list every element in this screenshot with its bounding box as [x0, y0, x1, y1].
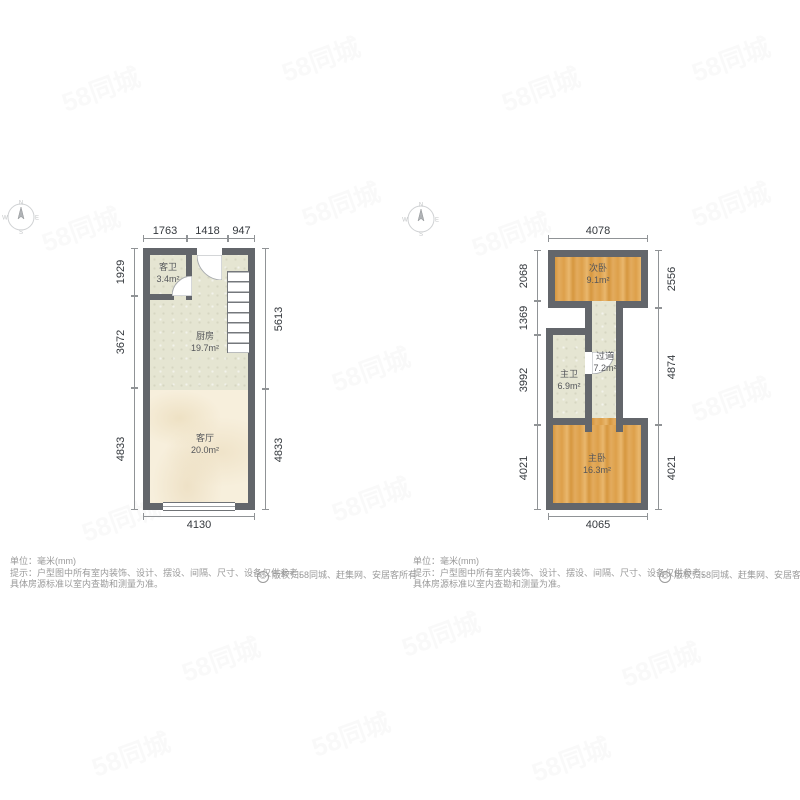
watermark-text: 58同城 [296, 172, 385, 234]
window [163, 502, 235, 511]
wall-segment [585, 418, 592, 432]
watermark-text: 58同城 [396, 602, 485, 664]
room-label-hallway: 过道 7.2m² [588, 350, 622, 374]
watermark-text: 58同城 [326, 337, 415, 399]
room-name: 次卧 [589, 263, 607, 273]
watermark-text: 58同城 [276, 27, 365, 89]
dimension: 4874 [654, 308, 676, 425]
copyright-text: 版权归58同城、赶集网、安居客所有 [272, 570, 417, 580]
room-name: 厨房 [196, 331, 214, 341]
watermark-text: 58同城 [526, 727, 615, 789]
dimension: 5613 [261, 248, 283, 389]
svg-text:E: E [435, 218, 439, 224]
dim-label: 4833 [115, 437, 127, 461]
dim-label: 1763 [143, 225, 187, 237]
floorplan-page: 58同城 58同城 58同城 58同城 58同城 58同城 58同城 58同城 … [0, 0, 800, 800]
room-name: 客厅 [196, 433, 214, 443]
watermark-text: 58同城 [86, 722, 175, 784]
dim-label: 4130 [143, 519, 255, 531]
dim-label: 4078 [548, 225, 648, 237]
dim-label: 4833 [273, 437, 285, 461]
dimension: 4078 [548, 225, 648, 239]
room-name: 主卧 [588, 453, 606, 463]
dimension: 1369 [520, 301, 542, 335]
dim-label: 2068 [518, 263, 530, 287]
wall-segment [546, 328, 553, 425]
compass-icon: N S E W [2, 198, 40, 236]
dim-label: 1418 [187, 225, 228, 237]
svg-text:N: N [419, 203, 423, 209]
copyright-left: ©版权归58同城、赶集网、安居客所有 [257, 568, 417, 583]
dim-label: 2556 [666, 267, 678, 291]
watermark-text: 58同城 [686, 27, 775, 89]
room-area: 20.0m² [191, 445, 219, 455]
dim-label: 4021 [666, 455, 678, 479]
room-name: 主卫 [560, 369, 578, 379]
copyright-icon: © [257, 571, 269, 583]
svg-text:S: S [419, 232, 423, 238]
wall-segment [546, 503, 648, 510]
svg-text:W: W [402, 218, 408, 224]
svg-text:S: S [19, 230, 23, 236]
dimension: 1929 [117, 248, 139, 296]
dimension: 2068 [520, 250, 542, 301]
wall-segment [143, 248, 150, 510]
watermark-text: 58同城 [616, 632, 705, 694]
dim-label: 4874 [666, 354, 678, 378]
dimension: 4021 [654, 425, 676, 510]
dimension: 3672 [117, 296, 139, 388]
wall-segment [248, 248, 255, 510]
dimension: 3992 [520, 335, 542, 425]
dimension: 4833 [261, 389, 283, 510]
wall-segment [546, 418, 585, 425]
entrance-door-arc [197, 255, 222, 280]
dim-label: 1929 [115, 260, 127, 284]
dimension: 1418 [187, 225, 228, 239]
room-label-master-bed: 主卧 16.3m² [572, 452, 622, 476]
wall-segment [143, 248, 197, 255]
room-area: 6.9m² [557, 381, 580, 391]
dim-label: 4021 [518, 455, 530, 479]
compass-icon: N S E W [402, 200, 440, 238]
room-area: 19.7m² [191, 343, 219, 353]
dimension: 947 [228, 225, 255, 239]
wall-segment [548, 250, 555, 308]
watermark-text: 58同城 [326, 467, 415, 529]
dimension: 2556 [654, 250, 676, 308]
dimension: 4065 [548, 516, 648, 531]
dim-label: 3992 [518, 368, 530, 392]
watermark-text: 58同城 [686, 172, 775, 234]
room-name: 客卫 [159, 262, 177, 272]
footer-unit: 单位：毫米(mm) [10, 556, 307, 568]
wall-segment [616, 418, 623, 432]
watermark-text: 58同城 [306, 702, 395, 764]
svg-text:E: E [35, 216, 39, 222]
wall-segment [616, 301, 648, 308]
dimension: 4833 [117, 388, 139, 510]
room-label-master-bath: 主卫 6.9m² [553, 368, 585, 392]
dim-label: 4065 [548, 519, 648, 531]
wall-segment [585, 301, 592, 352]
room-label-guest-bath: 客卫 3.4m² [145, 261, 191, 285]
room-area: 16.3m² [583, 465, 611, 475]
wall-segment [585, 374, 592, 418]
copyright-right: ©版权归58同城、赶集网、安居客所有 [659, 568, 800, 583]
dim-label: 3672 [115, 330, 127, 354]
hallway-threshold [592, 418, 616, 425]
stairs [227, 271, 249, 353]
dim-label: 947 [228, 225, 255, 237]
watermark-text: 58同城 [36, 197, 125, 259]
watermark-text: 58同城 [56, 57, 145, 119]
wall-segment [641, 418, 648, 510]
copyright-icon: © [659, 571, 671, 583]
svg-text:W: W [2, 216, 8, 222]
wall-segment [548, 250, 648, 257]
wall-segment [641, 250, 648, 308]
svg-text:N: N [19, 201, 23, 207]
watermark-text: 58同城 [176, 627, 265, 689]
copyright-text: 版权归58同城、赶集网、安居客所有 [674, 570, 800, 580]
room-area: 3.4m² [156, 274, 179, 284]
room-label-kitchen: 厨房 19.7m² [180, 330, 230, 354]
room-name: 过道 [596, 351, 614, 361]
dimension: 4130 [143, 516, 255, 531]
watermark-text: 58同城 [686, 367, 775, 429]
dimension: 1763 [143, 225, 187, 239]
wall-segment [150, 294, 174, 300]
dim-label: 1369 [518, 306, 530, 330]
room-area: 7.2m² [593, 363, 616, 373]
room-label-second-bed: 次卧 9.1m² [573, 262, 623, 286]
wall-segment [546, 425, 553, 510]
room-area: 9.1m² [586, 275, 609, 285]
room-label-living: 客厅 20.0m² [180, 432, 230, 456]
footer-unit: 单位：毫米(mm) [413, 556, 710, 568]
dim-label: 5613 [273, 306, 285, 330]
watermark-text: 58同城 [496, 57, 585, 119]
dimension: 4021 [520, 425, 542, 510]
